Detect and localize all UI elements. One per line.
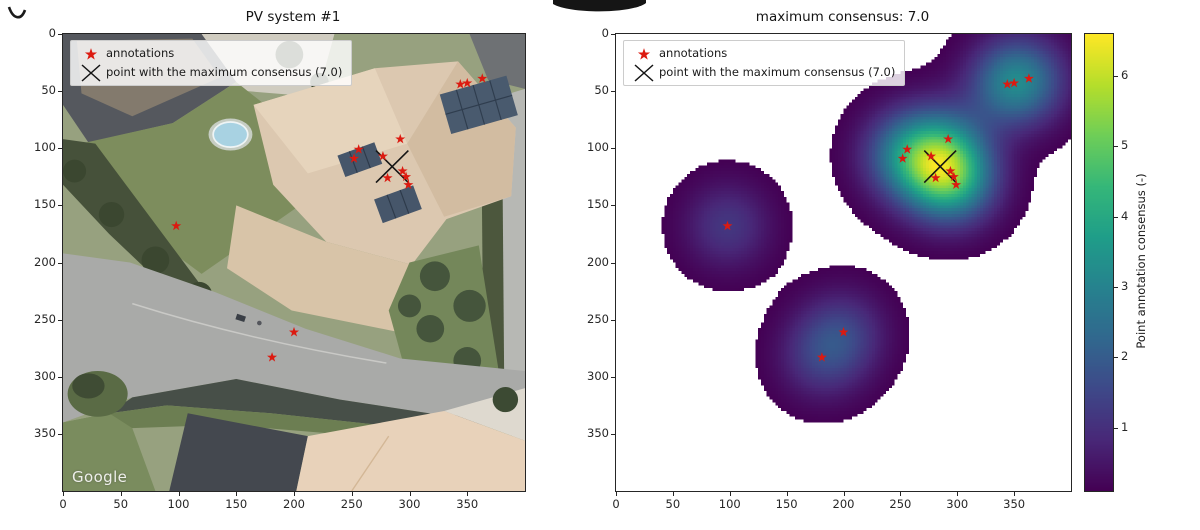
x-tick bbox=[179, 492, 180, 496]
colorbar-tick bbox=[1114, 357, 1118, 358]
y-tick-label: 250 bbox=[22, 312, 56, 326]
legend-max-consensus-label: point with the maximum consensus (7.0) bbox=[106, 64, 342, 81]
y-tick-label: 350 bbox=[22, 426, 56, 440]
y-tick bbox=[611, 320, 615, 321]
x-tick bbox=[1014, 492, 1015, 496]
legend-row-annotations: annotations bbox=[76, 44, 342, 63]
y-tick-label: 0 bbox=[575, 26, 609, 40]
colorbar-tick-label: 5 bbox=[1121, 138, 1128, 152]
x-tick bbox=[616, 492, 617, 496]
y-tick bbox=[58, 377, 62, 378]
x-tick bbox=[673, 492, 674, 496]
x-tick-label: 0 bbox=[599, 497, 633, 511]
legend-row-max-consensus: point with the maximum consensus (7.0) bbox=[629, 63, 895, 82]
y-tick-label: 0 bbox=[22, 26, 56, 40]
google-watermark: Google bbox=[72, 468, 127, 486]
colorbar-tick-label: 3 bbox=[1121, 279, 1128, 293]
colorbar-tick bbox=[1114, 287, 1118, 288]
y-tick bbox=[58, 320, 62, 321]
colorbar-tick bbox=[1114, 428, 1118, 429]
y-tick-label: 50 bbox=[22, 83, 56, 97]
x-tick bbox=[294, 492, 295, 496]
x-tick bbox=[787, 492, 788, 496]
y-tick bbox=[611, 148, 615, 149]
legend: annotations point with the maximum conse… bbox=[623, 40, 905, 86]
colorbar-tick-label: 4 bbox=[1121, 209, 1128, 223]
x-tick bbox=[467, 492, 468, 496]
colorbar-gradient bbox=[1085, 34, 1113, 491]
y-tick-label: 200 bbox=[22, 255, 56, 269]
y-tick bbox=[58, 148, 62, 149]
y-tick bbox=[58, 434, 62, 435]
y-tick bbox=[611, 434, 615, 435]
x-tick-label: 50 bbox=[656, 497, 690, 511]
x-tick bbox=[844, 492, 845, 496]
x-tick-label: 50 bbox=[104, 497, 138, 511]
y-tick-label: 50 bbox=[575, 83, 609, 97]
x-tick-label: 150 bbox=[219, 497, 253, 511]
legend-annotations-label: annotations bbox=[659, 45, 727, 62]
y-tick-label: 150 bbox=[22, 197, 56, 211]
right-panel-title: maximum consensus: 7.0 bbox=[615, 9, 1070, 25]
y-tick bbox=[611, 34, 615, 35]
y-tick bbox=[58, 34, 62, 35]
y-tick bbox=[58, 263, 62, 264]
y-tick bbox=[611, 91, 615, 92]
figure: PV system #1 bbox=[0, 0, 1200, 530]
y-tick bbox=[611, 377, 615, 378]
y-tick-label: 100 bbox=[22, 140, 56, 154]
y-tick-label: 150 bbox=[575, 197, 609, 211]
y-tick-label: 100 bbox=[575, 140, 609, 154]
y-tick bbox=[611, 263, 615, 264]
x-tick-label: 250 bbox=[883, 497, 917, 511]
x-tick bbox=[410, 492, 411, 496]
y-tick-label: 300 bbox=[22, 369, 56, 383]
legend-annotations-label: annotations bbox=[106, 45, 174, 62]
x-tick bbox=[63, 492, 64, 496]
x-marker-icon bbox=[629, 63, 659, 83]
legend-row-annotations: annotations bbox=[629, 44, 895, 63]
colorbar-tick-label: 6 bbox=[1121, 68, 1128, 82]
x-tick bbox=[236, 492, 237, 496]
colorbar-tick bbox=[1114, 217, 1118, 218]
legend: annotations point with the maximum conse… bbox=[70, 40, 352, 86]
y-tick bbox=[58, 205, 62, 206]
x-tick bbox=[352, 492, 353, 496]
x-tick-label: 300 bbox=[393, 497, 427, 511]
x-tick-label: 0 bbox=[46, 497, 80, 511]
x-tick-label: 100 bbox=[162, 497, 196, 511]
colorbar-tick bbox=[1114, 76, 1118, 77]
colorbar: 123456 bbox=[1084, 33, 1114, 492]
x-tick bbox=[957, 492, 958, 496]
y-tick-label: 300 bbox=[575, 369, 609, 383]
consensus-heatmap bbox=[616, 34, 1071, 491]
colorbar-tick-label: 1 bbox=[1121, 420, 1128, 434]
x-tick-label: 200 bbox=[827, 497, 861, 511]
x-tick-label: 100 bbox=[713, 497, 747, 511]
right-panel-axes: annotations point with the maximum conse… bbox=[615, 33, 1072, 492]
y-tick bbox=[611, 205, 615, 206]
x-tick-label: 350 bbox=[997, 497, 1031, 511]
x-tick-label: 150 bbox=[770, 497, 804, 511]
left-panel-title: PV system #1 bbox=[62, 9, 524, 25]
star-icon bbox=[76, 47, 106, 61]
y-tick-label: 250 bbox=[575, 312, 609, 326]
y-tick-label: 350 bbox=[575, 426, 609, 440]
x-tick-label: 300 bbox=[940, 497, 974, 511]
satellite-image bbox=[63, 34, 525, 491]
x-tick bbox=[900, 492, 901, 496]
x-marker-icon bbox=[76, 63, 106, 83]
y-tick-label: 200 bbox=[575, 255, 609, 269]
x-tick-label: 200 bbox=[277, 497, 311, 511]
x-tick-label: 350 bbox=[450, 497, 484, 511]
y-tick bbox=[58, 91, 62, 92]
colorbar-label: Point annotation consensus (-) bbox=[1134, 111, 1148, 411]
left-panel-axes: annotations point with the maximum conse… bbox=[62, 33, 526, 492]
x-tick bbox=[730, 492, 731, 496]
colorbar-tick-label: 2 bbox=[1121, 349, 1128, 363]
star-icon bbox=[629, 47, 659, 61]
legend-row-max-consensus: point with the maximum consensus (7.0) bbox=[76, 63, 342, 82]
colorbar-tick bbox=[1114, 146, 1118, 147]
legend-max-consensus-label: point with the maximum consensus (7.0) bbox=[659, 64, 895, 81]
x-tick-label: 250 bbox=[335, 497, 369, 511]
x-tick bbox=[121, 492, 122, 496]
